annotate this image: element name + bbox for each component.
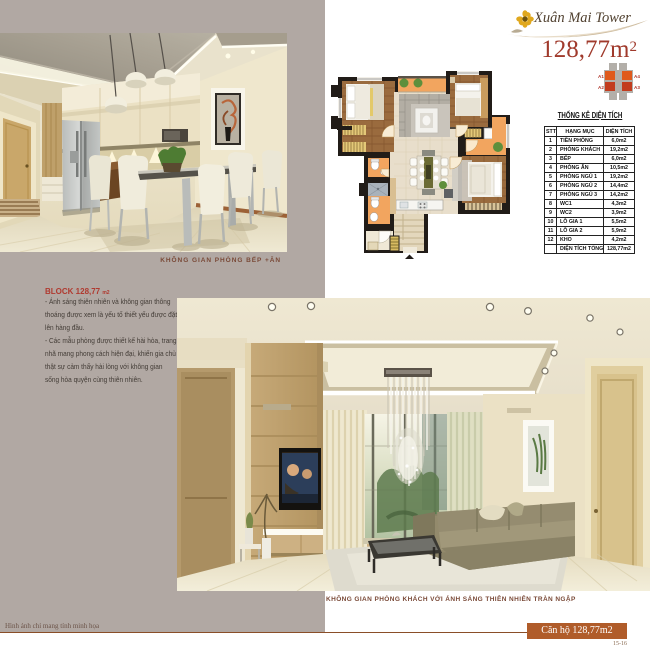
svg-text:A3: A3 [634,85,640,90]
svg-text:A2: A2 [598,85,604,90]
svg-text:A1: A1 [598,74,604,79]
svg-text:A4: A4 [634,74,640,79]
